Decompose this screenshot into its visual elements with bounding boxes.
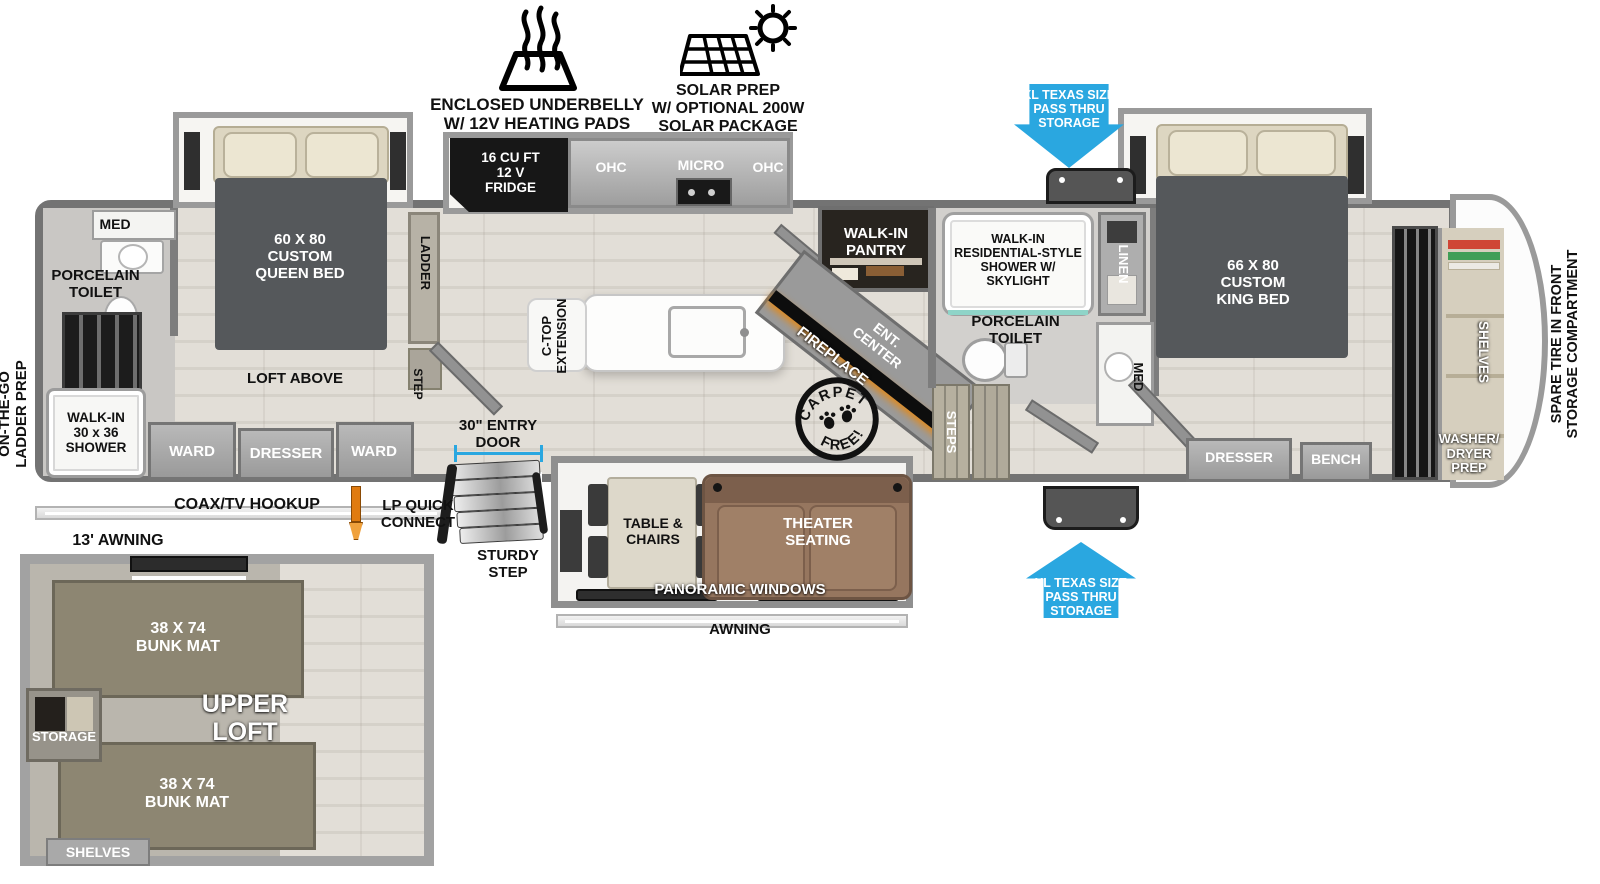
table-chairs-label: TABLE & CHAIRS	[608, 516, 698, 547]
living-slide-window	[560, 510, 582, 572]
queen-pillow-right	[305, 132, 379, 178]
king-bed-label: 66 X 80 CUSTOM KING BED	[1183, 258, 1323, 308]
loft-storage-label: STORAGE	[22, 730, 106, 745]
bunk-mat-top-label: 38 X 74 BUNK MAT	[108, 620, 248, 656]
ward-left-label: WARD	[152, 444, 232, 461]
coax-label: COAX/TV HOOKUP	[162, 496, 332, 514]
ctop-extension-label: C-TOP EXTENSION	[540, 281, 572, 391]
queen-bed-label: 60 X 80 CUSTOM QUEEN BED	[225, 232, 375, 282]
sturdy-step-label: STURDY STEP	[458, 548, 558, 582]
linen-label: LINEN	[1114, 224, 1130, 304]
spare-tire-label: SPARE TIRE IN FRONT STORAGE COMPARTMENT	[1549, 234, 1583, 454]
loft-shelves-label: SHELVES	[46, 845, 150, 861]
ohc-left-label: OHC	[585, 160, 637, 176]
awning-13-label: 13' AWNING	[62, 532, 174, 550]
rear-shower-label: WALK-IN 30 x 36 SHOWER	[46, 410, 146, 455]
loft-hatch	[130, 556, 248, 572]
paw-print-icon	[818, 409, 839, 430]
solar-label: SOLAR PREP W/ OPTIONAL 200W SOLAR PACKAG…	[633, 82, 823, 136]
theater-seating-label: THEATER SEATING	[748, 516, 888, 550]
bench-label: BENCH	[1300, 452, 1372, 468]
pass-thru-bottom-label: XL TEXAS SIZE PASS THRU STORAGE	[1026, 576, 1136, 618]
ladder-label: LADDER	[416, 223, 432, 303]
pass-thru-door-bottom	[1043, 486, 1139, 530]
upper-loft-label: UPPER LOFT	[165, 690, 325, 746]
ward-right-label: WARD	[334, 444, 414, 461]
washer-dryer-label: WASHER/ DRYER PREP	[1428, 432, 1510, 476]
entry-door-measure-line	[455, 452, 543, 455]
ohc-right-label: OHC	[742, 160, 794, 176]
pass-thru-arrow-top: XL TEXAS SIZE PASS THRU STORAGE	[1014, 84, 1124, 168]
main-med-label: MED	[1129, 347, 1145, 407]
queen-slide-window-left	[184, 132, 200, 190]
lp-quick-connect-icon-tip	[349, 522, 363, 540]
pass-thru-door-top	[1046, 168, 1136, 204]
paw-print-icon	[838, 404, 857, 424]
dinette-chair	[588, 536, 608, 578]
enclosed-underbelly-icon	[486, 4, 590, 96]
front-dresser-label: DRESSER	[238, 446, 334, 463]
pass-thru-arrow-bottom: XL TEXAS SIZE PASS THRU STORAGE	[1026, 542, 1136, 618]
master-dresser-label: DRESSER	[1191, 450, 1287, 466]
interior-steps-2	[972, 384, 1010, 480]
ladder-prep-label: ON-THE-GO LADDER PREP	[0, 354, 33, 474]
solar-prep-icon	[680, 2, 798, 82]
rear-toilet-label: PORCELAIN TOILET	[43, 268, 148, 302]
king-pillow-left	[1168, 130, 1248, 176]
loft-storage-box	[26, 688, 102, 762]
entry-door-label: 30" ENTRY DOOR	[438, 418, 558, 452]
pantry-label: WALK-IN PANTRY	[818, 226, 934, 260]
dinette-chair	[588, 484, 608, 526]
loft-above-label: LOFT ABOVE	[235, 371, 355, 388]
lp-quick-connect-icon	[351, 486, 361, 522]
microwave	[676, 178, 732, 206]
front-shelves-label: SHELVES	[1473, 307, 1491, 397]
bunk-mat-bottom-label: 38 X 74 BUNK MAT	[117, 776, 257, 812]
pass-thru-top-label: XL TEXAS SIZE PASS THRU STORAGE	[1014, 88, 1124, 130]
underbelly-label: ENCLOSED UNDERBELLY W/ 12V HEATING PADS	[427, 95, 647, 133]
panoramic-windows-label: PANORAMIC WINDOWS	[640, 582, 840, 599]
king-pillow-right	[1256, 130, 1336, 176]
steps-label: STEPS	[942, 387, 958, 477]
island-sink	[668, 306, 746, 358]
main-toilet-label: PORCELAIN TOILET	[958, 314, 1073, 348]
micro-label: MICRO	[668, 158, 734, 174]
residential-shower-label: WALK-IN RESIDENTIAL-STYLE SHOWER W/ SKYL…	[942, 232, 1094, 288]
fridge-label: 16 CU FT 12 V FRIDGE	[458, 150, 563, 195]
rv-floorplan: ENCLOSED UNDERBELLY W/ 12V HEATING PADS …	[0, 0, 1600, 884]
rear-wardrobe-slats	[62, 312, 142, 392]
rear-med-label: MED	[85, 217, 145, 233]
queen-pillow-left	[223, 132, 297, 178]
lp-quick-connect-label: LP QUICK CONNECT	[368, 498, 468, 532]
step-label: STEP	[410, 359, 424, 409]
awning-label: AWNING	[700, 622, 780, 639]
king-bed	[1146, 120, 1358, 358]
island-faucet	[740, 328, 749, 337]
